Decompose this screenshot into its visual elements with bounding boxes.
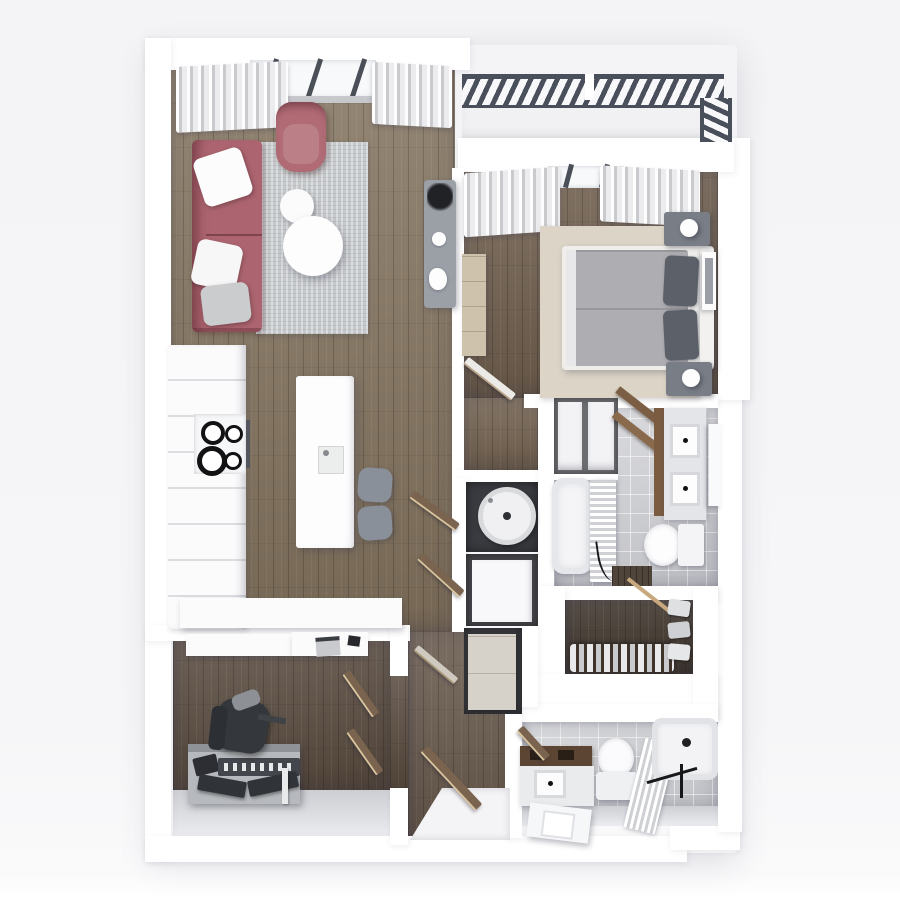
cooktop-burner-3 xyxy=(197,446,227,476)
bath2-vanity-cutout-2 xyxy=(558,750,574,760)
console-decor-vase xyxy=(429,268,447,290)
lamp-1 xyxy=(680,219,698,237)
vanity-faucet-2 xyxy=(683,486,688,491)
bath2-faucet xyxy=(548,781,553,786)
sofa-pillow-3 xyxy=(200,281,253,327)
bath-mirror xyxy=(708,424,721,506)
office-door-opening xyxy=(390,676,408,788)
kitchen-counter-south xyxy=(180,598,402,628)
linen-shelf-right xyxy=(588,402,614,470)
coffee-table-large xyxy=(283,216,343,276)
toilet-main-tank xyxy=(678,524,704,566)
linen-shelf-left xyxy=(558,402,582,470)
closet-folded-items-1 xyxy=(667,599,691,618)
shelf-black-item xyxy=(347,635,360,647)
island-faucet xyxy=(323,450,329,456)
living-curtain-left xyxy=(176,61,288,133)
wall-closet-top xyxy=(538,586,718,600)
closet-hanging-clothes xyxy=(570,644,674,672)
cooktop-burner-1 xyxy=(201,421,225,445)
stool-1 xyxy=(357,467,393,503)
bath2-fixture-riser xyxy=(680,764,683,798)
balcony-railing-right xyxy=(700,98,732,142)
armchair-cushion xyxy=(283,124,319,164)
bed-pillow-2 xyxy=(663,309,700,361)
vanity-faucet-1 xyxy=(683,438,688,443)
vanity-wood-side xyxy=(654,408,664,516)
closet-folded-items-3 xyxy=(667,643,690,661)
cooktop-burner-4 xyxy=(224,452,242,470)
storage-cabinet-white xyxy=(472,560,532,622)
wall-corridor-east-stub xyxy=(520,625,538,707)
sofa-seam xyxy=(206,234,262,236)
washing-machine-hinge xyxy=(488,498,493,503)
lamp-2 xyxy=(682,369,700,387)
oven-handle xyxy=(246,420,250,468)
shelf-laptop xyxy=(315,636,340,657)
washing-machine-knob xyxy=(503,512,511,520)
kitchen-cabinet-run xyxy=(168,345,246,629)
bedroom-wall-art-print xyxy=(705,258,713,304)
wall-right-bedroom xyxy=(718,138,750,400)
living-curtain-right xyxy=(372,62,452,128)
cooktop-burner-2 xyxy=(225,425,243,443)
console-decor-bowl xyxy=(432,232,446,246)
bed-pillow-1 xyxy=(663,255,700,307)
storage-cabinet-beige xyxy=(468,634,516,710)
desk-stand xyxy=(282,768,288,804)
stool-2 xyxy=(357,505,393,541)
floor-plan-scene xyxy=(0,0,900,900)
bathtub-main xyxy=(552,478,592,574)
wall-niche-left xyxy=(452,478,466,632)
bath2-showerhead xyxy=(682,738,691,747)
office-shelf-1 xyxy=(186,634,292,656)
closet-folded-items-2 xyxy=(667,621,691,639)
wall-right-lower xyxy=(718,396,742,832)
toilet-main-bowl xyxy=(644,524,682,566)
balcony-railing-post xyxy=(585,74,594,100)
bedroom-dresser xyxy=(462,254,486,356)
island-sink xyxy=(318,446,344,474)
wall-closet-right xyxy=(693,586,718,718)
console-plant xyxy=(427,183,453,213)
bath2-mirror-reflection xyxy=(541,810,576,840)
